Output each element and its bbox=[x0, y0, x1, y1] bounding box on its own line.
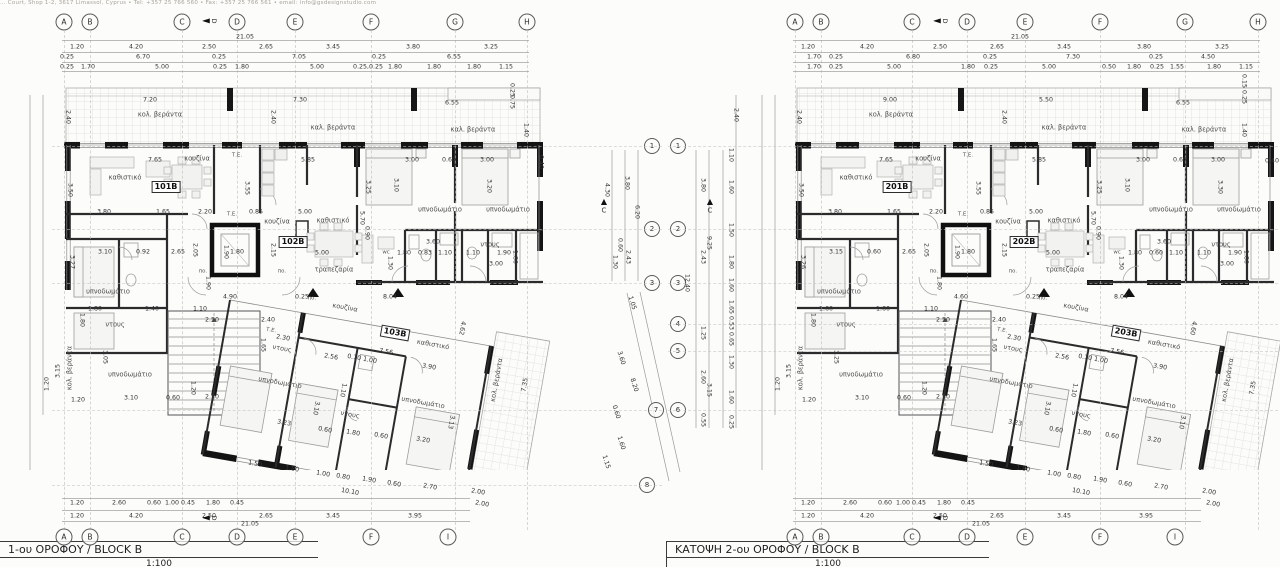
dimension-label: 0.60 bbox=[166, 395, 180, 402]
room-label: υπνοδωμάτιο bbox=[839, 372, 883, 379]
dimension-label: 1.60 bbox=[728, 390, 735, 404]
section-marker-label: C bbox=[708, 208, 713, 215]
dimension-label: 2.50 bbox=[933, 44, 947, 51]
dimension-label: 4.20 bbox=[860, 44, 874, 51]
dimension-label: 1.60 bbox=[728, 278, 735, 292]
dimension-label: 0.85 bbox=[249, 209, 263, 216]
dimension-label: 1.30 bbox=[728, 355, 735, 369]
dimension-label: 0.60 bbox=[611, 404, 622, 419]
dimension-label: 1.70 bbox=[807, 64, 821, 71]
dimension-label: 1.80 bbox=[512, 250, 519, 264]
dimension-label: 0.25 bbox=[728, 415, 735, 429]
dimension-label: 2.00 bbox=[1201, 487, 1216, 496]
room-label: καλ. βεράντα bbox=[311, 125, 356, 132]
row-grid-line bbox=[52, 283, 662, 284]
dimension-label: 1.10 bbox=[193, 306, 207, 313]
dimension-label: 4.50 bbox=[1201, 54, 1215, 61]
dimension-label: 1.65 bbox=[156, 209, 170, 216]
dimension-label: 2.00 bbox=[470, 487, 485, 496]
row-grid-line bbox=[52, 146, 662, 147]
dimension-label: 1.60 bbox=[728, 180, 735, 194]
room-label: τραπεζαρία bbox=[1046, 267, 1085, 274]
dimension-label: 2.15 bbox=[270, 243, 277, 257]
dimension-label: 2.05 bbox=[923, 243, 930, 257]
dimension-label: 3.27 bbox=[69, 255, 76, 269]
dimension-label: 1.80 bbox=[1127, 64, 1141, 71]
dimension-label: 0.60 bbox=[386, 479, 401, 488]
dimension-label: 1.65 bbox=[260, 338, 267, 352]
room-label: κουζίνα bbox=[184, 156, 210, 163]
grid-line bbox=[90, 30, 91, 530]
room-label: κολ. βεράντα bbox=[869, 112, 913, 119]
dimension-label: 1.80 bbox=[79, 313, 86, 327]
grid-line bbox=[237, 30, 238, 530]
dimension-label: 3.10 bbox=[393, 178, 400, 192]
dimension-label: 1.60 bbox=[616, 435, 627, 450]
dimension-label: 3.25 bbox=[1215, 44, 1229, 51]
room-label: καλ. βεράντα bbox=[451, 127, 496, 134]
dimension-label: 2.40 bbox=[992, 317, 1006, 324]
dimension-label: 1.80 bbox=[230, 249, 244, 256]
dimension-label: 3.25 bbox=[365, 180, 372, 194]
second-floor-title: ΚΑΤΟΨΗ 2-ου ΟΡΟΦΟΥ / BLOCK B bbox=[667, 542, 989, 558]
dimension-label: 1.90 bbox=[361, 475, 376, 484]
note-label: Τ.Ε. bbox=[958, 212, 968, 219]
dimension-label: 3.50 bbox=[798, 183, 805, 197]
dimension-label: 2.50 bbox=[205, 317, 219, 324]
note-label: πο. bbox=[278, 269, 286, 276]
grid-bubble-E: E bbox=[1017, 529, 1034, 546]
dimension-label: 3.95 bbox=[1139, 513, 1153, 520]
dimension-label: 1.80 bbox=[1207, 64, 1221, 71]
dimension-label: 3.45 bbox=[1057, 44, 1071, 51]
grid-bubble-F: F bbox=[363, 14, 380, 31]
dimension-label: 1.00 bbox=[315, 469, 330, 478]
dimension-label: 7.65 bbox=[879, 157, 893, 164]
dimension-label: 4.30 bbox=[604, 183, 611, 197]
grid-bubble-H: H bbox=[519, 14, 536, 31]
dimension-label: 5.85 bbox=[301, 157, 315, 164]
row-grid-line bbox=[668, 351, 1278, 352]
dimension-label: 0.25 bbox=[213, 64, 227, 71]
dimension-label: 3.45 bbox=[326, 44, 340, 51]
dimension-label: 0.25 bbox=[829, 64, 843, 71]
room-label: ντους bbox=[480, 242, 499, 249]
unit-label: 101B bbox=[152, 181, 181, 193]
grid-bubble-H: H bbox=[1250, 14, 1267, 31]
dimension-label: 1.80 bbox=[1243, 250, 1250, 264]
grid-bubble-D: D bbox=[959, 14, 976, 31]
dimension-label: 1.20 bbox=[802, 397, 816, 404]
dimension-label: 5.00 bbox=[315, 250, 329, 257]
grid-bubble-A: A bbox=[56, 14, 73, 31]
section-flag-D: ◄ bbox=[202, 16, 210, 27]
dimension-label: 2.40 bbox=[270, 110, 277, 124]
dimension-label: 2.65 bbox=[259, 44, 273, 51]
dimension-label: 1.80 bbox=[1128, 250, 1142, 257]
dimension-label: 0.25 bbox=[829, 54, 843, 61]
dimension-label: 2.70 bbox=[422, 482, 437, 491]
dimension-label: 3.25 bbox=[1096, 180, 1103, 194]
grid-line bbox=[1025, 30, 1026, 530]
room-label: ντους bbox=[1211, 242, 1230, 249]
room-label: υπνοδωμάτιο bbox=[418, 207, 462, 214]
second-floor-title-block: ΚΑΤΟΨΗ 2-ου ΟΡΟΦΟΥ / BLOCK B 1:100 bbox=[666, 541, 989, 567]
dimension-label: 1.15 bbox=[1239, 64, 1253, 71]
dimension-label: 0.90 bbox=[1095, 226, 1102, 240]
grid-bubble-A: A bbox=[56, 529, 73, 546]
dimension-line bbox=[62, 510, 470, 511]
dimension-label: 2.50 bbox=[205, 394, 219, 401]
dimension-label: 0.25,0.25 bbox=[353, 64, 383, 71]
dimension-label: 1.30 bbox=[387, 256, 394, 270]
room-label: καλ. βεράντα bbox=[1042, 125, 1087, 132]
dimension-label: 1.50 bbox=[728, 223, 735, 237]
dimension-label: 1.40 bbox=[145, 306, 159, 313]
room-label: υπνοδωμάτιο bbox=[1217, 207, 1261, 214]
dimension-label: 0.45 bbox=[961, 500, 975, 507]
dimension-label: 1.20 bbox=[190, 381, 197, 395]
unit-label: 201B bbox=[883, 181, 912, 193]
section-triangle-icon: ▲ bbox=[707, 199, 713, 205]
dimension-label: 5.00 bbox=[887, 64, 901, 71]
dimension-label: 0.60 bbox=[878, 500, 892, 507]
room-label: καλ. βεράντα bbox=[1182, 127, 1227, 134]
room-label: καθιστικό bbox=[109, 175, 142, 182]
dimension-label: 1.80 bbox=[961, 64, 975, 71]
note-label: Τ.Ε. bbox=[232, 153, 242, 160]
dimension-label: 6.55 bbox=[445, 100, 459, 107]
dimension-label: 3.80 bbox=[1137, 44, 1151, 51]
dimension-line bbox=[62, 40, 529, 41]
dimension-label: 0.60 bbox=[1149, 250, 1163, 257]
dimension-label: 1.80 bbox=[88, 306, 102, 313]
dimension-label: 21.05 bbox=[972, 521, 990, 528]
dimension-label: 3.80 bbox=[97, 209, 111, 216]
dimension-label: 1.80 bbox=[1015, 464, 1030, 473]
dimension-label: 3.15 bbox=[706, 383, 713, 397]
dimension-label: 5.00 bbox=[155, 64, 169, 71]
grid-bubble-B: B bbox=[82, 14, 99, 31]
dimension-label: 1.80 bbox=[728, 255, 735, 269]
dimension-label: 1.10 bbox=[1197, 250, 1211, 257]
note-label: Τ.Ε. bbox=[996, 327, 1007, 336]
dimension-label: 2.20 bbox=[198, 209, 212, 216]
dimension-label: 0.75 bbox=[509, 95, 516, 109]
grid-line bbox=[1100, 30, 1101, 530]
dimension-label: 7.65 bbox=[148, 157, 162, 164]
dimension-label: 1.20 bbox=[71, 397, 85, 404]
dimension-label: 1.80 bbox=[235, 64, 249, 71]
row-grid-line bbox=[668, 146, 1278, 147]
dimension-label: 1.15 bbox=[499, 64, 513, 71]
dimension-label: 0.50 bbox=[1102, 64, 1116, 71]
grid-bubble-B: B bbox=[82, 529, 99, 546]
dimension-label: 9.25 bbox=[706, 236, 713, 250]
first-floor-title-block: 1-ου ΟΡΟΦΟΥ / BLOCK B 1:100 bbox=[0, 541, 318, 567]
dimension-label: 3.60 bbox=[616, 350, 627, 365]
first-floor-plan-drawing bbox=[60, 85, 550, 470]
dimension-label: 0.45 bbox=[230, 500, 244, 507]
room-label: κολ. βεράντα bbox=[138, 112, 182, 119]
room-label: καθιστικό bbox=[317, 218, 350, 225]
grid-line bbox=[295, 30, 296, 530]
room-label: υπνοδωμάτιο bbox=[108, 372, 152, 379]
dimension-label: 9.00 bbox=[883, 97, 897, 104]
dimension-label: 2.00 bbox=[1205, 499, 1220, 508]
dimension-label: 5.00 bbox=[1029, 209, 1043, 216]
dimension-label: 0.53 0.65 bbox=[728, 316, 735, 346]
dimension-label: 0.85 bbox=[980, 209, 994, 216]
dimension-label: 3.10 bbox=[855, 395, 869, 402]
section-flag-label: D bbox=[941, 18, 949, 23]
dimension-label: 0.60 bbox=[897, 395, 911, 402]
dimension-label: 0.60 bbox=[867, 249, 881, 256]
note-label: πο. bbox=[1039, 296, 1047, 303]
dimension-line bbox=[793, 510, 1201, 511]
dimension-label: 1.80 bbox=[284, 464, 299, 473]
dimension-label: 1.15 bbox=[601, 454, 612, 469]
dimension-label: 1.20 bbox=[775, 377, 782, 391]
grid-bubble-G: G bbox=[447, 14, 464, 31]
dimension-label: 2.40 bbox=[733, 108, 740, 122]
section-flag-label: D bbox=[941, 515, 949, 520]
room-label: κουζίνα bbox=[915, 156, 941, 163]
dimension-label: 3.26 bbox=[800, 255, 807, 269]
room-label: ντους bbox=[836, 322, 855, 329]
dimension-label: 0.60 bbox=[147, 500, 161, 507]
dimension-label: 1.20 bbox=[70, 513, 84, 520]
dimension-label: 1.90 bbox=[223, 245, 230, 259]
grid-line bbox=[527, 30, 528, 530]
row-grid-line bbox=[668, 283, 1278, 284]
dimension-label: 0.25 bbox=[60, 54, 74, 61]
dimension-label: 10.10 bbox=[341, 487, 360, 497]
dimension-label: 3.95 bbox=[408, 513, 422, 520]
dimension-label: 2.40 bbox=[261, 317, 275, 324]
dimension-label: 1.40 bbox=[1241, 123, 1248, 137]
dimension-label: 1.80 bbox=[810, 313, 817, 327]
dimension-line bbox=[793, 52, 1260, 53]
room-label: υπνοδωμάτιο bbox=[486, 207, 530, 214]
row-grid-line bbox=[52, 485, 662, 486]
section-triangle-icon: ▲ bbox=[601, 199, 607, 205]
dimension-label: 3.15 bbox=[829, 249, 843, 256]
dimension-label: 5.85 bbox=[1032, 157, 1046, 164]
dimension-label: 6.55 bbox=[1176, 100, 1190, 107]
dimension-label: 21.05 bbox=[241, 521, 259, 528]
dimension-label: 2.15 bbox=[1001, 243, 1008, 257]
dimension-label: 21.05 bbox=[1011, 34, 1029, 41]
dimension-label: 0.45 bbox=[912, 500, 926, 507]
dimension-label: 1.20 bbox=[801, 500, 815, 507]
dimension-label: 3.25 bbox=[484, 44, 498, 51]
dimension-label: 3.80 bbox=[624, 176, 631, 190]
dimension-label: 1.30 bbox=[612, 255, 619, 269]
grid-bubble-D: D bbox=[959, 529, 976, 546]
unit-label: 102B bbox=[279, 236, 308, 248]
room-label: καθιστικό bbox=[1048, 218, 1081, 225]
dimension-label: 0.90 bbox=[364, 226, 371, 240]
dimension-label: 3.00 bbox=[1136, 157, 1150, 164]
dimension-label: 3.05 bbox=[102, 350, 109, 364]
row-grid-line bbox=[668, 229, 1278, 230]
section-marker-label: C bbox=[602, 208, 607, 215]
dimension-label: 1.25 bbox=[700, 326, 707, 340]
note-label: πο. bbox=[199, 269, 207, 276]
dimension-label: 2.40 bbox=[65, 110, 72, 124]
dimension-label: 4.60 bbox=[954, 294, 968, 301]
floor-plan-sheet: … Court, Shop 1-2, 3617 Limassol, Cyprus… bbox=[0, 0, 1280, 567]
dimension-label: 7.30 bbox=[293, 97, 307, 104]
dimension-label: 6.70 bbox=[136, 54, 150, 61]
grid-bubble-G: G bbox=[1177, 14, 1194, 31]
dimension-label: 1.80 bbox=[397, 250, 411, 257]
dimension-label: 10.10 bbox=[1072, 487, 1091, 497]
room-label: κολ. βεράντα bbox=[67, 346, 74, 390]
room-label: καθιστικό bbox=[840, 175, 873, 182]
dimension-label: 1.65 bbox=[728, 300, 735, 314]
dimension-label: 3.00 bbox=[405, 157, 419, 164]
note-label: πο. bbox=[1009, 269, 1017, 276]
dimension-label: 2.05 bbox=[192, 243, 199, 257]
dimension-label: 1.90 bbox=[205, 276, 212, 290]
dimension-label: 3.80 bbox=[700, 178, 707, 192]
dimension-label: 2.65 bbox=[990, 513, 1004, 520]
dimension-label: 0.15 0.25 bbox=[1241, 74, 1248, 104]
grid-bubble-A: A bbox=[787, 529, 804, 546]
dimension-label: 3.00 bbox=[1211, 157, 1225, 164]
dimension-label: 8.04 bbox=[383, 294, 397, 301]
dimension-label: 3.00 bbox=[480, 157, 494, 164]
dimension-label: 1.80 bbox=[206, 500, 220, 507]
dimension-line bbox=[793, 62, 1260, 63]
dimension-label: 2.60 bbox=[112, 500, 126, 507]
dimension-label: 0.80 bbox=[1066, 472, 1081, 481]
room-label: κουζίνα bbox=[264, 219, 290, 226]
grid-line bbox=[795, 30, 796, 530]
dimension-label: 4.20 bbox=[860, 513, 874, 520]
dimension-label: 0.83 bbox=[418, 250, 432, 257]
section-flag-label: D bbox=[210, 515, 218, 520]
section-flag-D: ◄ bbox=[933, 16, 941, 27]
note-label: πο. bbox=[308, 296, 316, 303]
row-grid-line bbox=[668, 324, 1278, 325]
dimension-label: 3.25 bbox=[833, 350, 840, 364]
dimension-label: 2.40 bbox=[1001, 110, 1008, 124]
first-floor-scale: 1:100 bbox=[0, 558, 318, 567]
dimension-label: 3.00 bbox=[489, 261, 503, 268]
dimension-label: 1.10 bbox=[1169, 250, 1183, 257]
dimension-label: 3.80 bbox=[406, 44, 420, 51]
grid-line bbox=[64, 30, 65, 530]
grid-bubble-F: F bbox=[1092, 529, 1109, 546]
dimension-label: 2.60 bbox=[700, 370, 707, 384]
dimension-label: 0.25 bbox=[372, 54, 386, 61]
dimension-label: 1.10 bbox=[438, 250, 452, 257]
room-label: υπνοδωμάτιο bbox=[86, 289, 130, 296]
dimension-label: 2.65 bbox=[259, 513, 273, 520]
dimension-label: 1.20 bbox=[70, 44, 84, 51]
dimension-label: 2.60 bbox=[843, 500, 857, 507]
dimension-label: 2.65 bbox=[902, 249, 916, 256]
dimension-label: 1.65 bbox=[991, 338, 998, 352]
dimension-label: 1.10 bbox=[466, 250, 480, 257]
dimension-label: 0.25 bbox=[984, 64, 998, 71]
section-marker-C: ▲ bbox=[707, 199, 713, 205]
dimension-label: 1.00 bbox=[896, 500, 910, 507]
dimension-label: 0.25 bbox=[1149, 54, 1163, 61]
dimension-label: 3.20 bbox=[486, 179, 493, 193]
dimension-label: 1.10 bbox=[924, 306, 938, 313]
dimension-label: 0.25 bbox=[212, 54, 226, 61]
dimension-label: 0.80 bbox=[335, 472, 350, 481]
dimension-label: 3.80 bbox=[828, 209, 842, 216]
grid-bubble-A: A bbox=[787, 14, 804, 31]
dimension-label: 0.25 bbox=[60, 64, 74, 71]
grid-bubble-D: D bbox=[229, 529, 246, 546]
sheet-header-contact: … Court, Shop 1-2, 3617 Limassol, Cyprus… bbox=[0, 0, 660, 6]
dimension-label: 0.60 bbox=[1173, 157, 1187, 164]
dimension-label: 5.70 bbox=[1090, 211, 1097, 225]
dimension-label: 0.60 bbox=[1117, 479, 1132, 488]
section-flag-label: D bbox=[210, 18, 218, 23]
dimension-label: 1.20 bbox=[921, 381, 928, 395]
room-label: κολ. βεράντα bbox=[798, 346, 805, 390]
dimension-line bbox=[62, 62, 529, 63]
second-floor-plan-drawing bbox=[791, 85, 1280, 470]
dimension-label: 0.25 bbox=[1150, 64, 1164, 71]
room-label: κουζίνα bbox=[995, 219, 1021, 226]
grid-bubble-I: I bbox=[440, 529, 457, 546]
dimension-label: 2.20 bbox=[929, 209, 943, 216]
dimension-label: 1.05 bbox=[627, 295, 638, 310]
dimension-label: 3.55 bbox=[244, 181, 251, 195]
dimension-label: 7.30 bbox=[1066, 54, 1080, 61]
dimension-label: 5.00 bbox=[298, 209, 312, 216]
dimension-label: 3.60 bbox=[426, 239, 440, 246]
dimension-label: 4.20 bbox=[129, 513, 143, 520]
dimension-label: 4.90 bbox=[223, 294, 237, 301]
dimension-label: 1.90 bbox=[497, 250, 511, 257]
dimension-label: 1.00 bbox=[165, 500, 179, 507]
dimension-label: 3.10 bbox=[1124, 178, 1131, 192]
dimension-label: 3.15 bbox=[786, 364, 793, 378]
dimension-label: 4.20 bbox=[129, 44, 143, 51]
dimension-label: 3.55 bbox=[975, 181, 982, 195]
dimension-label: 3.10 bbox=[124, 395, 138, 402]
room-label: υπνοδωμάτιο bbox=[1149, 207, 1193, 214]
dimension-label: 2.65 bbox=[171, 249, 185, 256]
dimension-label: 1.00 bbox=[1046, 469, 1061, 478]
grid-bubble-C: C bbox=[904, 529, 921, 546]
first-floor-title: 1-ου ΟΡΟΦΟΥ / BLOCK B bbox=[0, 542, 318, 558]
grid-bubble-C: C bbox=[174, 529, 191, 546]
dimension-label: 1.80 bbox=[427, 64, 441, 71]
dimension-label: 1.65 bbox=[887, 209, 901, 216]
grid-bubble-F: F bbox=[1092, 14, 1109, 31]
dimension-label: 0.40 bbox=[1265, 158, 1279, 165]
dimension-label: 1.20 bbox=[801, 44, 815, 51]
room-label: υπνοδωμάτιο bbox=[817, 289, 861, 296]
dimension-label: 3.50 bbox=[67, 183, 74, 197]
dimension-label: 1.10 bbox=[728, 148, 735, 162]
dimension-label: 8.04 bbox=[1114, 294, 1128, 301]
grid-line bbox=[1258, 30, 1259, 530]
dimension-label: 1.60 bbox=[876, 306, 890, 313]
grid-line bbox=[371, 30, 372, 530]
section-marker-C: ▲ bbox=[601, 199, 607, 205]
